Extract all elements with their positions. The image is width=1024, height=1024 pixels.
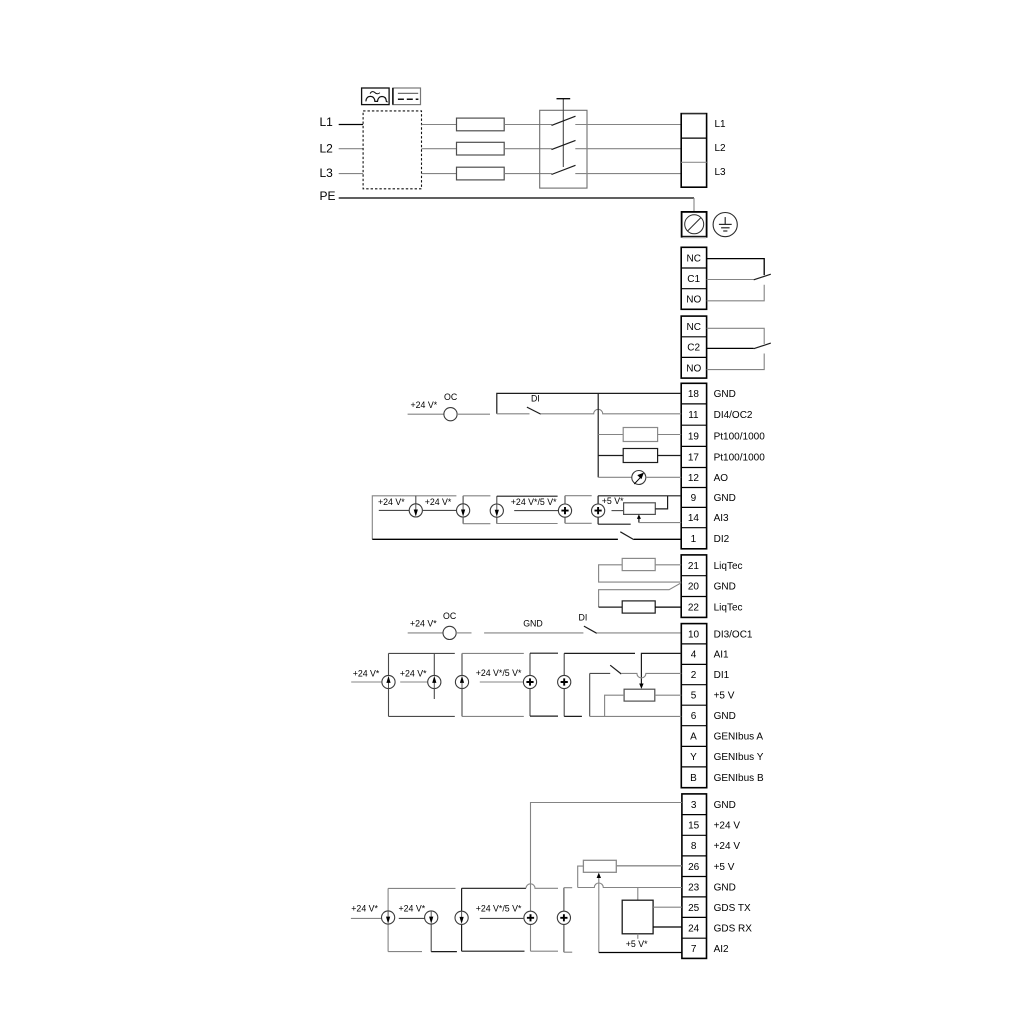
svg-text:1: 1 [691, 534, 697, 545]
svg-text:14: 14 [688, 513, 700, 524]
svg-text:NO: NO [686, 295, 701, 306]
svg-text:GND: GND [714, 493, 736, 504]
svg-text:25: 25 [688, 903, 700, 914]
svg-text:AI2: AI2 [714, 944, 729, 955]
svg-text:Pt100/1000: Pt100/1000 [714, 453, 766, 464]
svg-text:+24 V*: +24 V* [411, 400, 438, 410]
svg-text:4: 4 [691, 650, 697, 661]
svg-text:GND: GND [523, 619, 543, 629]
svg-text:NO: NO [686, 363, 701, 374]
svg-text:LiqTec: LiqTec [714, 603, 743, 614]
svg-text:12: 12 [688, 473, 700, 484]
svg-text:21: 21 [688, 561, 700, 572]
svg-text:OC: OC [444, 392, 458, 402]
svg-text:+24 V*/5 V*: +24 V*/5 V* [511, 497, 557, 507]
svg-text:GENIbus A: GENIbus A [714, 732, 764, 743]
svg-text:5: 5 [691, 691, 697, 702]
svg-text:C1: C1 [687, 274, 700, 285]
svg-text:+24 V*: +24 V* [353, 668, 380, 678]
svg-text:+24 V*: +24 V* [400, 668, 427, 678]
svg-text:10: 10 [688, 629, 700, 640]
svg-text:C2: C2 [687, 343, 700, 354]
svg-text:A: A [690, 732, 697, 743]
svg-text:AO: AO [714, 473, 729, 484]
svg-text:+24 V: +24 V [714, 841, 741, 852]
svg-text:23: 23 [688, 882, 700, 893]
svg-text:+24 V*: +24 V* [425, 497, 452, 507]
svg-text:+24 V*/5 V*: +24 V*/5 V* [476, 903, 522, 913]
svg-text:DI3/OC1: DI3/OC1 [714, 629, 753, 640]
svg-text:DI2: DI2 [714, 534, 730, 545]
svg-text:NC: NC [687, 253, 701, 264]
svg-text:19: 19 [688, 431, 700, 442]
svg-text:GND: GND [714, 882, 736, 893]
svg-text:+5 V: +5 V [714, 691, 735, 702]
svg-text:+5 V: +5 V [714, 862, 735, 873]
svg-text:DI: DI [531, 394, 540, 404]
svg-text:GENIbus Y: GENIbus Y [714, 752, 764, 763]
svg-text:AI1: AI1 [714, 650, 729, 661]
svg-text:17: 17 [688, 453, 700, 464]
svg-text:L1: L1 [320, 115, 334, 129]
svg-text:15: 15 [688, 821, 700, 832]
svg-text:20: 20 [688, 582, 700, 593]
svg-text:22: 22 [688, 603, 700, 614]
svg-text:Pt100/1000: Pt100/1000 [714, 431, 766, 442]
svg-text:L3: L3 [715, 167, 727, 178]
svg-text:+5 V*: +5 V* [602, 496, 624, 506]
svg-text:24: 24 [688, 923, 700, 934]
svg-text:+24 V*/5 V*: +24 V*/5 V* [476, 668, 522, 678]
svg-text:GDS TX: GDS TX [714, 903, 751, 914]
svg-text:+24 V*: +24 V* [378, 497, 405, 507]
svg-text:L3: L3 [320, 166, 334, 180]
svg-text:+24 V*: +24 V* [410, 619, 437, 629]
svg-text:11: 11 [688, 410, 699, 421]
svg-text:7: 7 [691, 944, 697, 955]
svg-text:18: 18 [688, 389, 700, 400]
svg-text:8: 8 [691, 841, 697, 852]
svg-text:B: B [690, 773, 697, 784]
svg-text:LiqTec: LiqTec [714, 561, 743, 572]
svg-text:2: 2 [691, 670, 697, 681]
svg-text:+24 V*: +24 V* [351, 904, 378, 914]
svg-text:DI: DI [579, 613, 588, 623]
svg-text:PE: PE [320, 189, 336, 203]
svg-text:DI4/OC2: DI4/OC2 [714, 410, 753, 421]
svg-text:GND: GND [714, 582, 736, 593]
svg-text:26: 26 [688, 862, 700, 873]
svg-text:GDS RX: GDS RX [714, 923, 753, 934]
svg-text:3: 3 [691, 800, 697, 811]
svg-text:GND: GND [714, 389, 736, 400]
svg-text:DI1: DI1 [714, 670, 730, 681]
svg-text:L2: L2 [715, 143, 727, 154]
svg-text:NC: NC [687, 322, 701, 333]
svg-text:+24 V: +24 V [714, 821, 741, 832]
svg-text:GND: GND [714, 711, 736, 722]
svg-text:OC: OC [443, 611, 457, 621]
svg-text:L1: L1 [715, 119, 727, 130]
svg-text:9: 9 [691, 493, 697, 504]
svg-text:6: 6 [691, 711, 697, 722]
svg-text:GND: GND [714, 800, 736, 811]
svg-text:L2: L2 [320, 141, 334, 155]
svg-text:+24 V*: +24 V* [399, 904, 426, 914]
svg-text:AI3: AI3 [714, 513, 729, 524]
svg-text:Y: Y [690, 752, 697, 763]
svg-text:+5 V*: +5 V* [626, 939, 648, 949]
svg-text:GENIbus B: GENIbus B [714, 773, 764, 784]
